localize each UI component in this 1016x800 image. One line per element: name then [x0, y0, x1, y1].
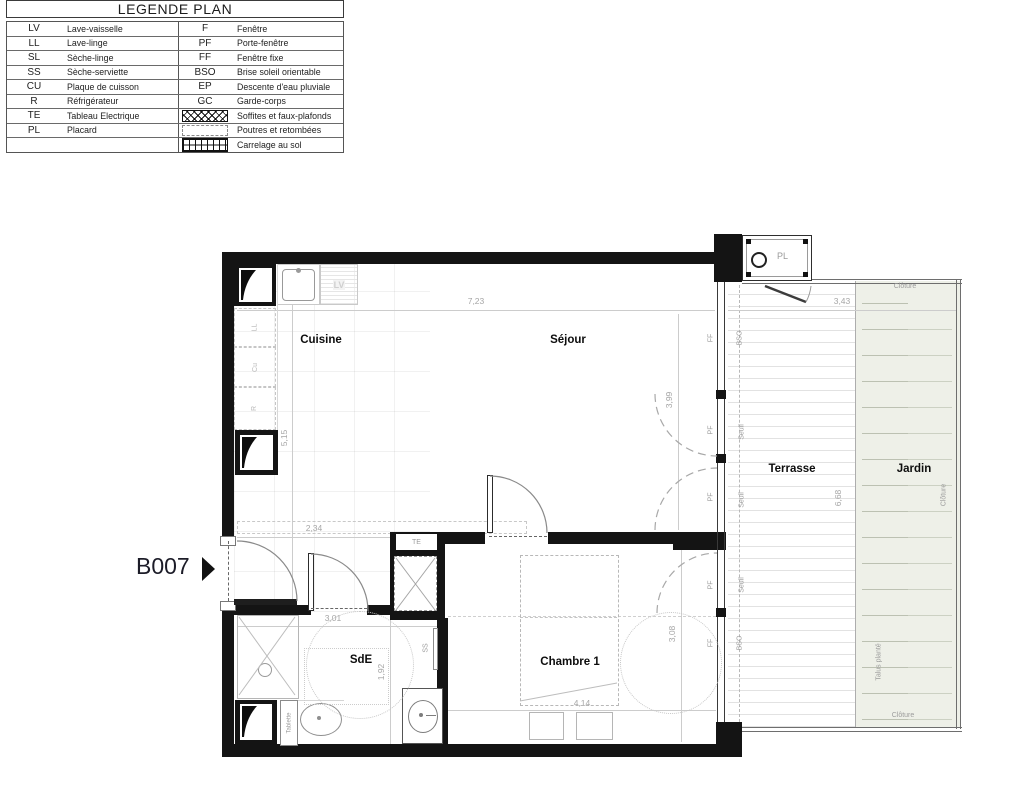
- room-label-chambre: Chambre 1: [520, 656, 620, 668]
- room-label-sde: SdE: [331, 654, 391, 666]
- room-label-sejour: Séjour: [528, 334, 608, 346]
- entrance-door-swing-arc: [237, 541, 297, 601]
- plan-linework-overlay: [0, 0, 1016, 800]
- bed-throw-line: [520, 683, 617, 701]
- entrance-arrow-icon: [202, 557, 215, 581]
- cloture-label-bottom: Clôture: [878, 712, 928, 719]
- bso-label: BSO: [737, 331, 744, 346]
- cloture-label-top: Clôture: [880, 283, 930, 290]
- soffit-x-hatch-lines: [396, 558, 435, 610]
- window-label-pf: PF: [708, 493, 715, 502]
- window-label-ff: FF: [708, 639, 715, 648]
- seuil-label: Seuil: [739, 577, 746, 593]
- talus-plante-label: Talus planté: [876, 643, 883, 680]
- sde-door-swing-arc: [311, 554, 368, 611]
- unit-number: B007: [136, 553, 190, 580]
- window-label-pf: PF: [708, 426, 715, 435]
- room-label-cuisine: Cuisine: [281, 334, 361, 346]
- window-label-ff: FF: [708, 334, 715, 343]
- floor-plan-page: LEGENDE PLAN LVLave-vaisselle FFenêtre L…: [0, 0, 1016, 800]
- bso-label: BSO: [737, 636, 744, 651]
- room-label-terrasse: Terrasse: [752, 463, 832, 475]
- seuil-label: Seuil: [739, 424, 746, 440]
- shower-x-lines: [239, 617, 295, 695]
- closet-door-leaf-line: [765, 286, 806, 302]
- closet-door-swing-arc: [806, 286, 811, 302]
- room-label-jardin: Jardin: [874, 463, 954, 475]
- cloture-label-right: Clôture: [941, 484, 948, 507]
- chambre-door-swing-arc: [490, 476, 547, 533]
- seuil-label: Seuil: [739, 492, 746, 508]
- window-label-pf: PF: [708, 581, 715, 590]
